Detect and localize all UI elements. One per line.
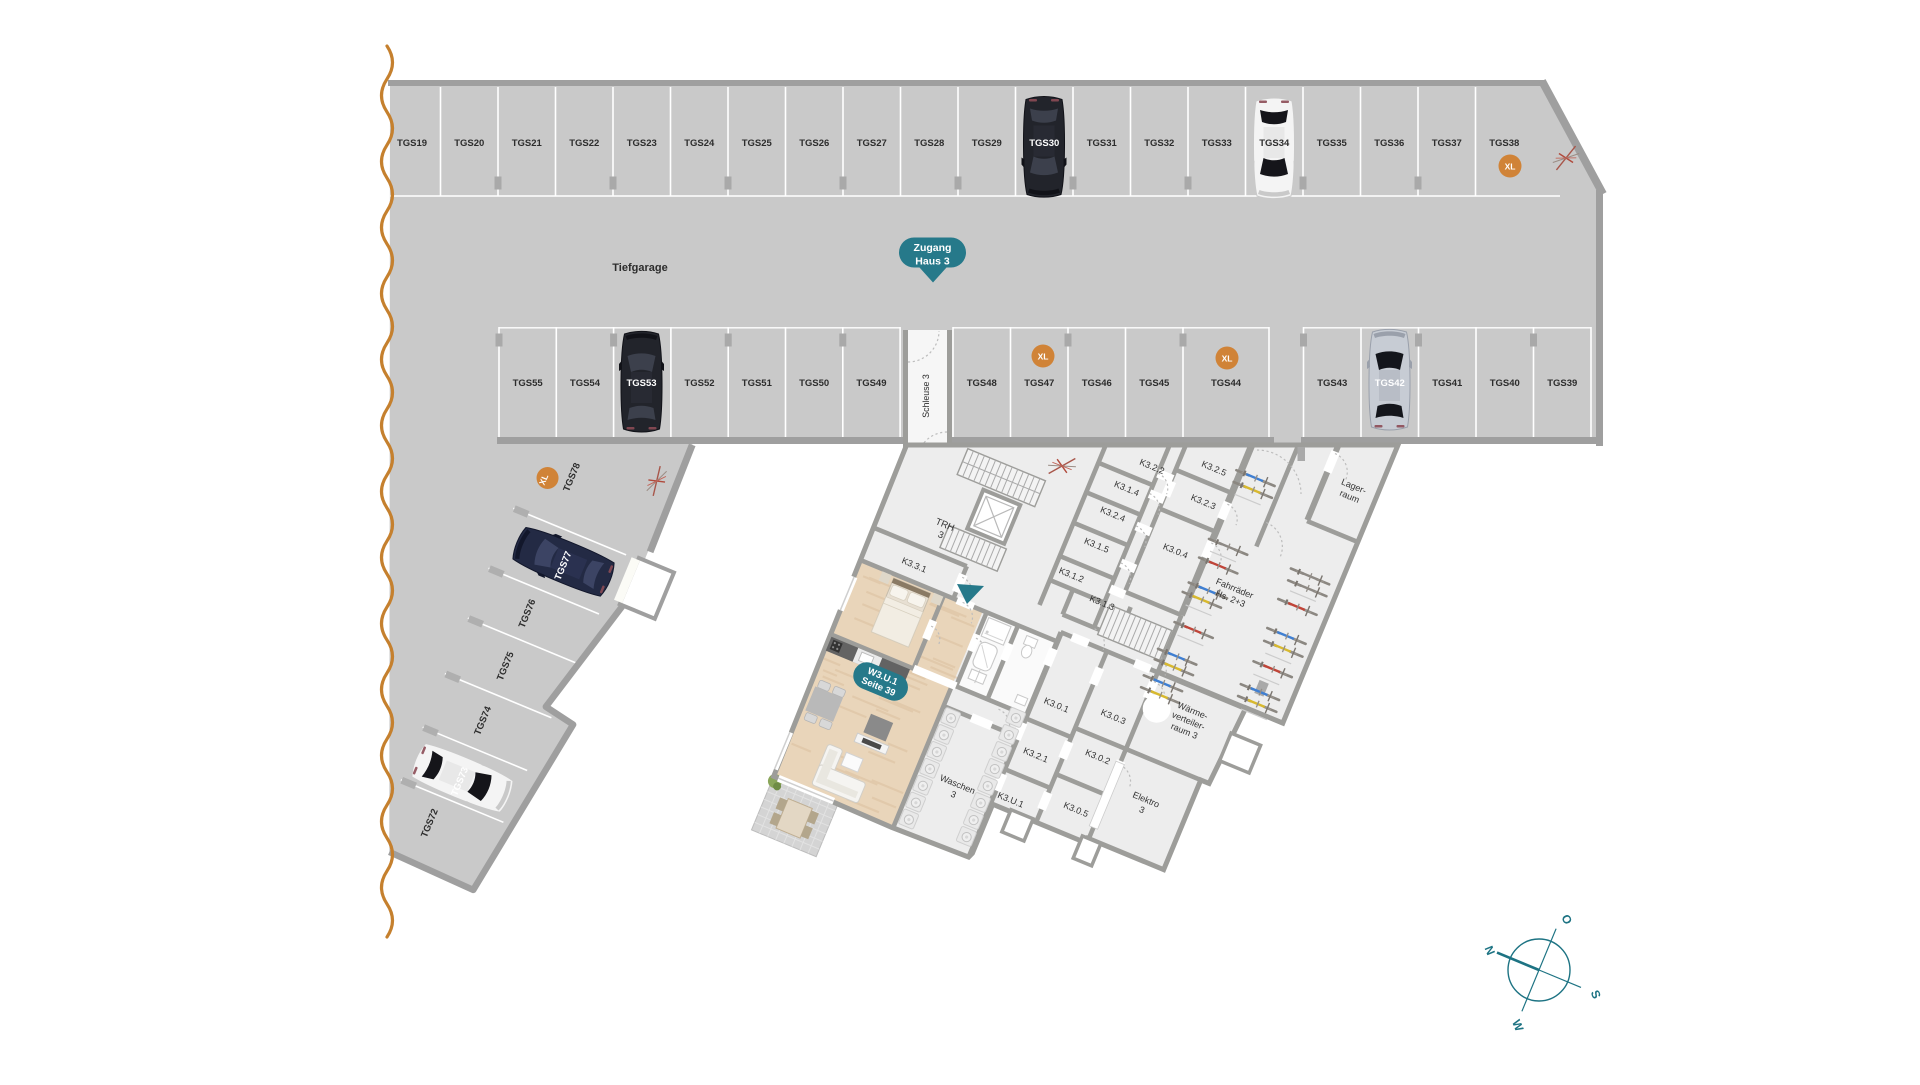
svg-text:Haus 3: Haus 3	[915, 256, 950, 268]
svg-text:W: W	[1509, 1018, 1527, 1034]
svg-text:TGS38: TGS38	[1489, 138, 1519, 149]
svg-text:TGS27: TGS27	[857, 138, 887, 149]
svg-text:TGS46: TGS46	[1082, 378, 1112, 389]
svg-text:TGS50: TGS50	[799, 378, 829, 389]
svg-text:TGS21: TGS21	[512, 138, 543, 149]
svg-text:TGS31: TGS31	[1087, 138, 1118, 149]
svg-text:XL: XL	[1505, 162, 1516, 172]
svg-text:Tiefgarage: Tiefgarage	[612, 262, 667, 274]
svg-text:TGS22: TGS22	[569, 138, 599, 149]
svg-text:TGS48: TGS48	[967, 378, 997, 389]
svg-text:TGS47: TGS47	[1024, 378, 1054, 389]
svg-text:TGS34: TGS34	[1259, 138, 1290, 149]
svg-text:S: S	[1588, 988, 1604, 1001]
svg-text:Schleuse 3: Schleuse 3	[921, 374, 931, 418]
svg-text:TGS32: TGS32	[1144, 138, 1174, 149]
svg-text:TGS55: TGS55	[513, 378, 544, 389]
svg-text:TGS43: TGS43	[1317, 378, 1347, 389]
svg-text:TGS54: TGS54	[570, 378, 601, 389]
svg-text:TGS20: TGS20	[454, 138, 484, 149]
svg-text:TGS45: TGS45	[1139, 378, 1170, 389]
svg-text:TGS26: TGS26	[799, 138, 829, 149]
svg-text:TGS30: TGS30	[1029, 138, 1059, 149]
svg-text:O: O	[1558, 912, 1575, 926]
svg-text:TGS24: TGS24	[684, 138, 715, 149]
svg-text:XL: XL	[1222, 354, 1233, 364]
svg-text:TGS40: TGS40	[1490, 378, 1520, 389]
svg-text:TGS39: TGS39	[1547, 378, 1577, 389]
svg-text:Zugang: Zugang	[914, 242, 952, 254]
svg-text:TGS35: TGS35	[1317, 138, 1348, 149]
svg-text:TGS25: TGS25	[742, 138, 773, 149]
svg-text:TGS51: TGS51	[742, 378, 773, 389]
svg-text:TGS44: TGS44	[1211, 378, 1242, 389]
svg-text:TGS37: TGS37	[1432, 138, 1462, 149]
svg-text:XL: XL	[1038, 352, 1049, 362]
svg-text:TGS19: TGS19	[397, 138, 427, 149]
svg-text:TGS52: TGS52	[684, 378, 714, 389]
svg-text:TGS49: TGS49	[856, 378, 886, 389]
svg-text:TGS42: TGS42	[1375, 378, 1405, 389]
svg-text:TGS36: TGS36	[1374, 138, 1404, 149]
svg-text:TGS23: TGS23	[627, 138, 657, 149]
svg-text:TGS28: TGS28	[914, 138, 944, 149]
svg-text:TGS41: TGS41	[1432, 378, 1463, 389]
svg-text:N: N	[1482, 944, 1498, 957]
svg-text:TGS53: TGS53	[626, 378, 656, 389]
svg-text:TGS29: TGS29	[972, 138, 1002, 149]
svg-text:TGS33: TGS33	[1202, 138, 1232, 149]
